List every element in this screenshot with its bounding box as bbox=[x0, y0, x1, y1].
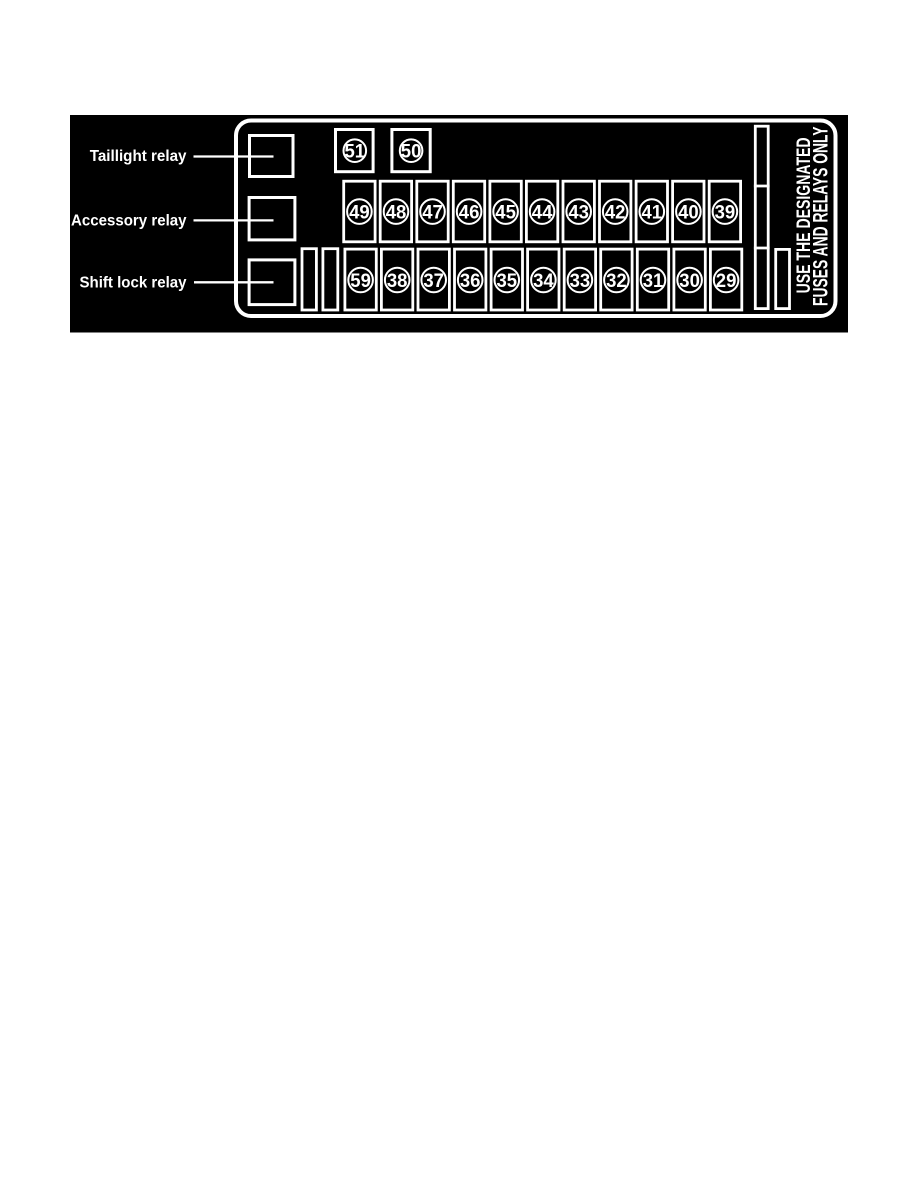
svg-text:43: 43 bbox=[568, 202, 589, 224]
svg-text:42: 42 bbox=[605, 202, 626, 224]
svg-text:37: 37 bbox=[423, 270, 444, 292]
svg-text:51: 51 bbox=[345, 141, 366, 163]
svg-text:39: 39 bbox=[715, 202, 736, 224]
svg-text:Shift lock relay: Shift lock relay bbox=[80, 274, 187, 291]
svg-text:40: 40 bbox=[678, 202, 699, 224]
svg-text:41: 41 bbox=[642, 202, 663, 224]
svg-text:33: 33 bbox=[570, 270, 591, 292]
svg-text:31: 31 bbox=[643, 270, 664, 292]
svg-text:Taillight relay: Taillight relay bbox=[90, 148, 187, 165]
svg-text:46: 46 bbox=[459, 202, 480, 224]
svg-text:45: 45 bbox=[495, 202, 516, 224]
svg-text:32: 32 bbox=[606, 270, 627, 292]
svg-text:36: 36 bbox=[460, 270, 481, 292]
svg-text:30: 30 bbox=[679, 270, 700, 292]
svg-text:29: 29 bbox=[716, 270, 737, 292]
svg-text:47: 47 bbox=[422, 202, 443, 224]
svg-text:38: 38 bbox=[387, 270, 408, 292]
svg-text:FUSES AND RELAYS ONLY: FUSES AND RELAYS ONLY bbox=[809, 127, 832, 307]
svg-text:50: 50 bbox=[401, 141, 422, 163]
svg-text:Accessory relay: Accessory relay bbox=[71, 213, 187, 230]
svg-text:44: 44 bbox=[532, 202, 553, 224]
svg-text:49: 49 bbox=[349, 202, 370, 224]
svg-text:34: 34 bbox=[533, 270, 554, 292]
svg-text:59: 59 bbox=[350, 270, 371, 292]
svg-text:48: 48 bbox=[386, 202, 407, 224]
svg-text:35: 35 bbox=[497, 270, 518, 292]
